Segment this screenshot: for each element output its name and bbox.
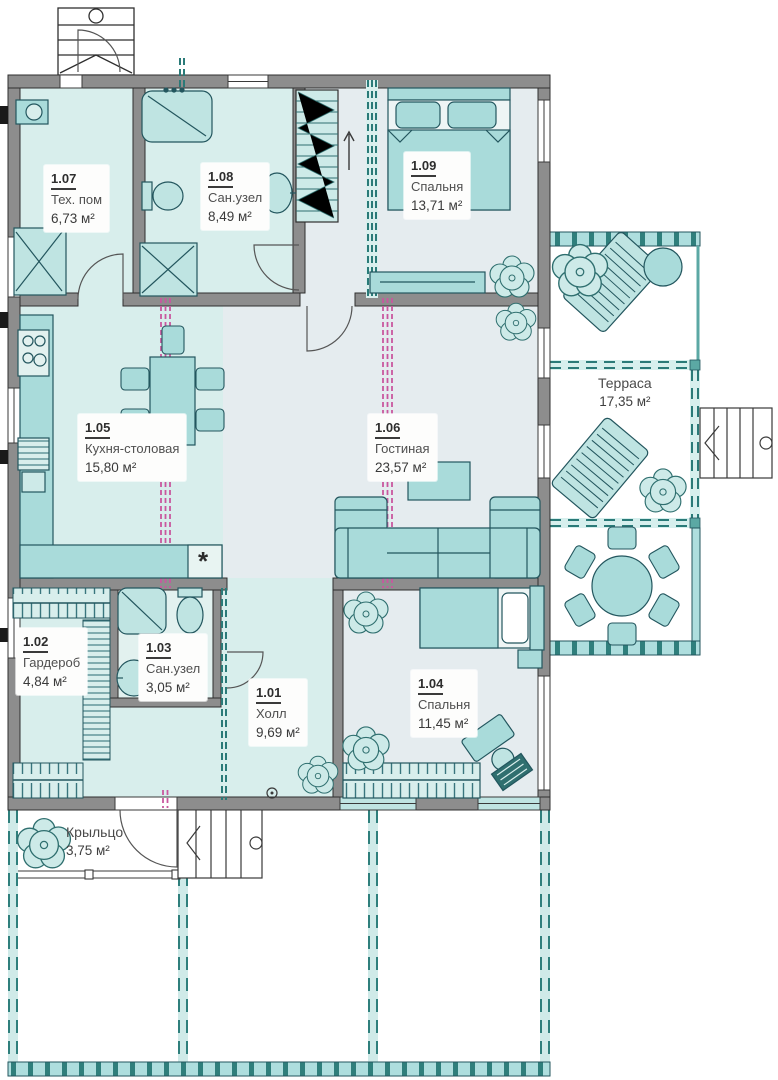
room-name: Сан.узел: [208, 190, 262, 206]
wall-vents: [0, 106, 8, 642]
terrace-steps: [700, 408, 772, 478]
patio-dining-set: [563, 527, 680, 645]
room-label-1-04: 1.04 Спальня 11,45 м²: [411, 670, 477, 737]
exterior-stairs-top: [58, 8, 134, 75]
room-area: 9,69 м²: [256, 725, 300, 742]
room-area: 6,73 м²: [51, 211, 102, 228]
room-area: 15,80 м²: [85, 460, 179, 477]
floor-drain-dot: [271, 792, 274, 795]
room-label-1-08: 1.08 Сан.узел 8,49 м²: [201, 163, 269, 230]
room-number: 1.07: [51, 171, 76, 190]
terrace-label: Терраса 17,35 м²: [598, 374, 652, 411]
room-area: 23,57 м²: [375, 460, 430, 477]
room-area: 13,71 м²: [411, 198, 463, 215]
room-name: Тех. пом: [51, 192, 102, 208]
room-label-1-06: 1.06 Гостиная 23,57 м²: [368, 414, 437, 481]
room-number: 1.06: [375, 420, 400, 439]
terrace-name: Терраса: [598, 374, 652, 393]
room-name: Спальня: [411, 179, 463, 195]
room-number: 1.05: [85, 420, 110, 439]
room-label-1-01: 1.01 Холл 9,69 м²: [249, 679, 307, 746]
room-number: 1.09: [411, 158, 436, 177]
room-area: 4,84 м²: [23, 674, 80, 691]
terrace-area: 17,35 м²: [598, 393, 652, 411]
room-area: 3,05 м²: [146, 680, 200, 697]
appliance-symbol: *: [198, 546, 208, 577]
floor-plan: 1.07 Тех. пом 6,73 м² 1.08 Сан.узел 8,49…: [0, 0, 778, 1080]
room-label-1-09: 1.09 Спальня 13,71 м²: [404, 152, 470, 219]
room-name: Холл: [256, 706, 300, 722]
room-label-1-03: 1.03 Сан.узел 3,05 м²: [139, 634, 207, 701]
room-name: Гостиная: [375, 441, 430, 457]
room-area: 8,49 м²: [208, 209, 262, 226]
room-number: 1.01: [256, 685, 281, 704]
room-number: 1.02: [23, 634, 48, 653]
room-number: 1.04: [418, 676, 443, 695]
porch-label: Крыльцо 3,75 м²: [66, 823, 123, 860]
room-name: Сан.узел: [146, 661, 200, 677]
room-number: 1.03: [146, 640, 171, 659]
room-label-1-05: 1.05 Кухня-столовая 15,80 м²: [78, 414, 186, 481]
room-label-1-02: 1.02 Гардероб 4,84 м²: [16, 628, 87, 695]
room-name: Гардероб: [23, 655, 80, 671]
room-name: Кухня-столовая: [85, 441, 179, 457]
floor-plan-drawing: [0, 0, 778, 1080]
room-label-1-07: 1.07 Тех. пом 6,73 м²: [44, 165, 109, 232]
porch-area: 3,75 м²: [66, 842, 123, 860]
room-area: 11,45 м²: [418, 716, 470, 733]
porch-name: Крыльцо: [66, 823, 123, 842]
entry-steps: [178, 808, 262, 878]
room-number: 1.08: [208, 169, 233, 188]
room-name: Спальня: [418, 697, 470, 713]
